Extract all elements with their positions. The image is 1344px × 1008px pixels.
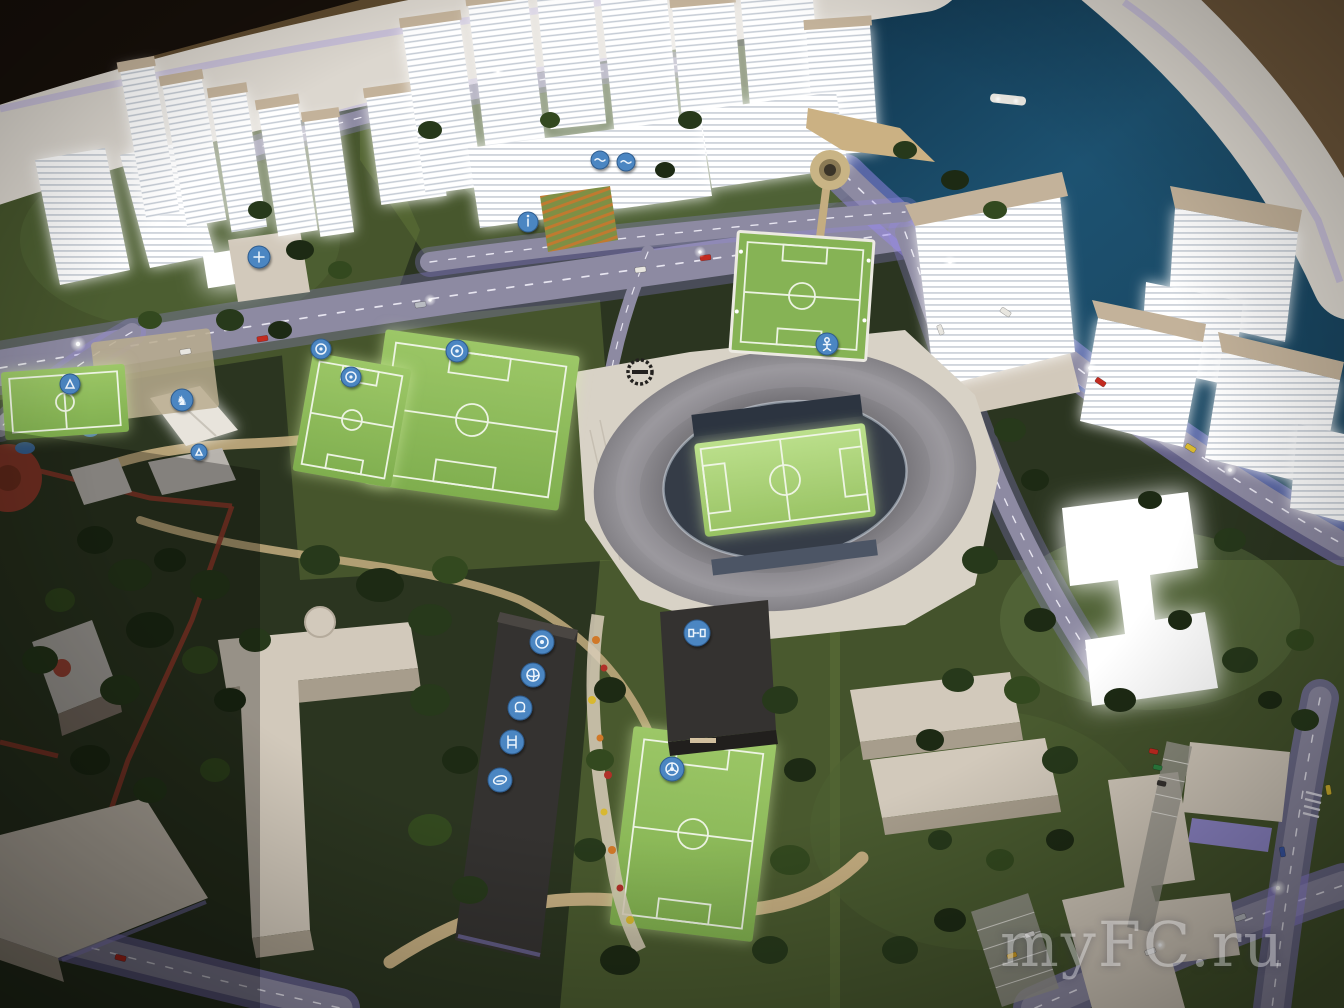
scene-svg: ♞: [0, 0, 1344, 1008]
shadow-historic-quarter: [0, 430, 260, 1008]
model-photo: ♞: [0, 0, 1344, 1008]
watermark: myFC.ru: [1000, 908, 1285, 981]
